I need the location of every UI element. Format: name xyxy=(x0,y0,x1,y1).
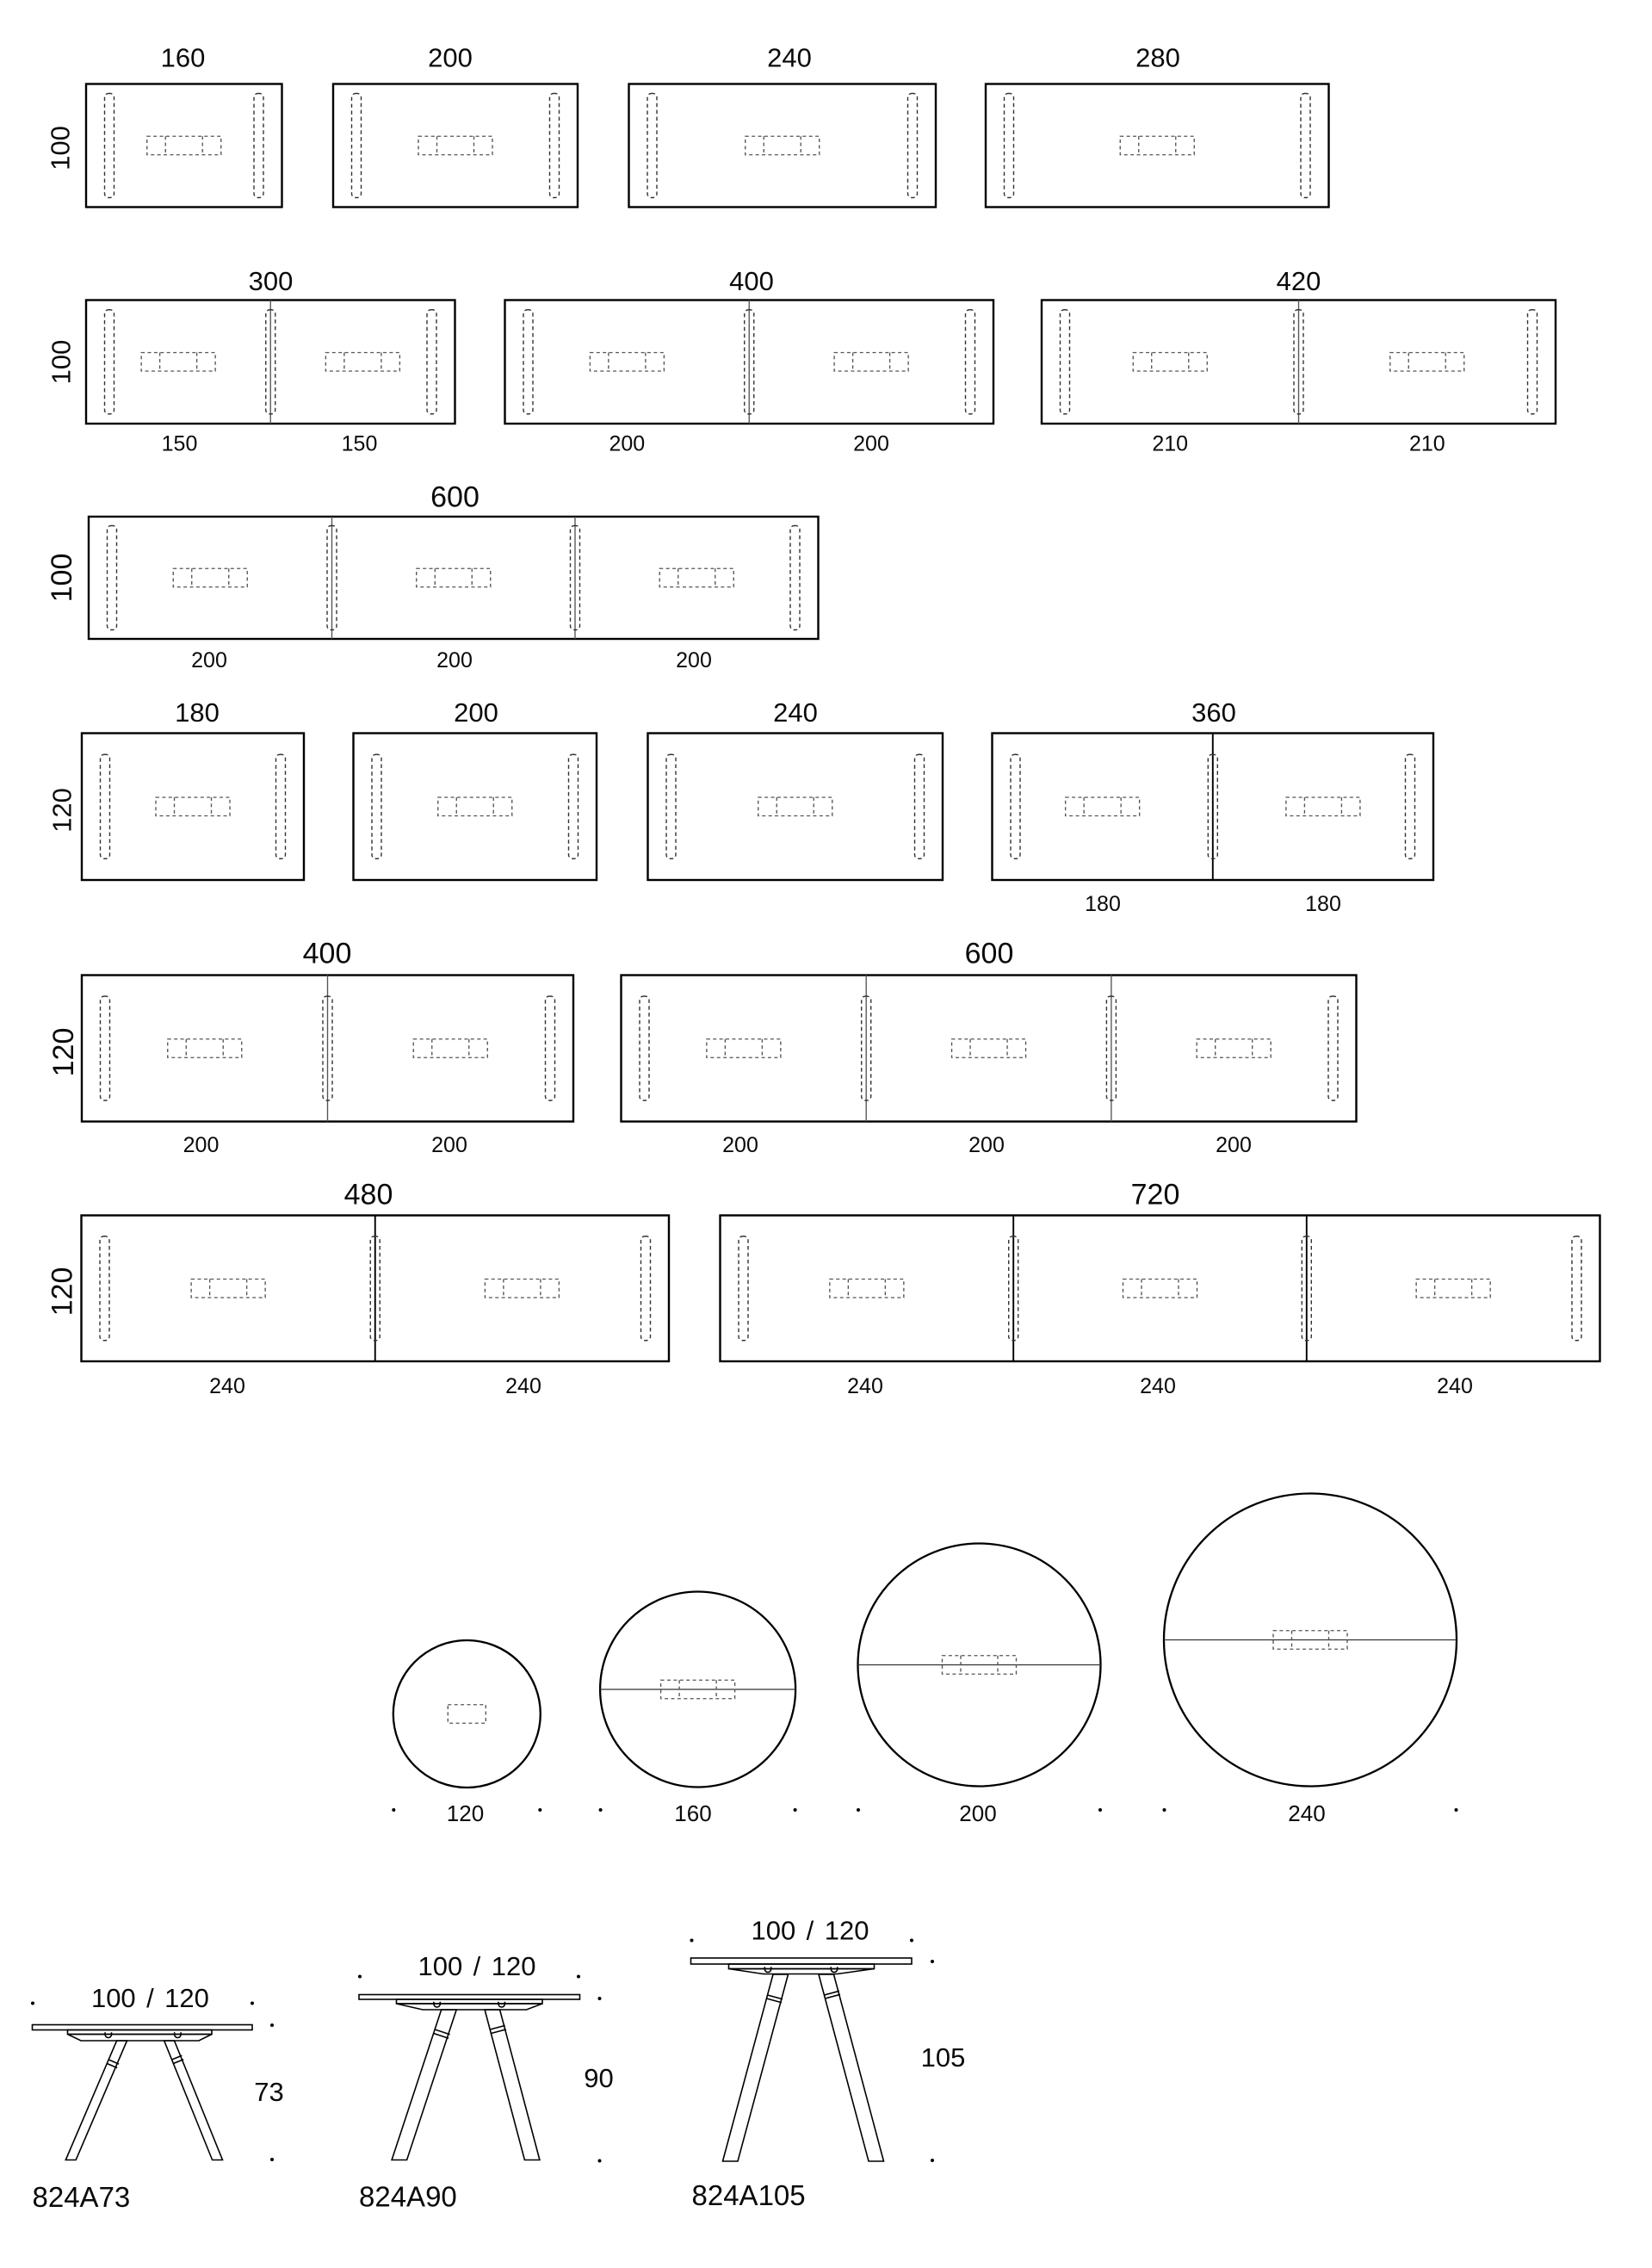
svg-text:160: 160 xyxy=(674,1800,711,1826)
svg-text:90: 90 xyxy=(584,2063,613,2093)
svg-text:100: 100 xyxy=(46,554,78,603)
svg-text:360: 360 xyxy=(1191,697,1236,728)
svg-text:200: 200 xyxy=(191,648,227,672)
svg-text:180: 180 xyxy=(1085,892,1121,916)
svg-text:420: 420 xyxy=(1277,266,1321,296)
svg-text:100 / 120: 100 / 120 xyxy=(91,1983,209,2013)
svg-text:400: 400 xyxy=(729,266,774,296)
svg-text:180: 180 xyxy=(1305,892,1341,916)
svg-text:240: 240 xyxy=(1140,1374,1176,1398)
svg-text:120: 120 xyxy=(447,1800,484,1826)
svg-text:240: 240 xyxy=(1437,1374,1473,1398)
svg-text:200: 200 xyxy=(959,1800,996,1826)
svg-text:200: 200 xyxy=(968,1133,1005,1157)
svg-text:200: 200 xyxy=(454,697,498,728)
svg-text:400: 400 xyxy=(303,938,352,970)
svg-text:180: 180 xyxy=(175,697,220,728)
svg-text:200: 200 xyxy=(1216,1133,1252,1157)
svg-text:120: 120 xyxy=(46,1267,79,1317)
svg-text:73: 73 xyxy=(254,2077,283,2107)
svg-text:200: 200 xyxy=(183,1133,220,1157)
svg-text:200: 200 xyxy=(676,648,712,672)
svg-text:480: 480 xyxy=(344,1179,393,1211)
svg-text:100 / 120: 100 / 120 xyxy=(752,1915,869,1945)
svg-text:200: 200 xyxy=(428,42,473,72)
svg-text:100: 100 xyxy=(46,126,76,170)
svg-text:824A105: 824A105 xyxy=(692,2179,806,2211)
svg-text:600: 600 xyxy=(965,938,1014,970)
svg-text:824A73: 824A73 xyxy=(33,2181,131,2213)
svg-text:150: 150 xyxy=(162,432,198,456)
svg-text:200: 200 xyxy=(853,432,889,456)
svg-text:600: 600 xyxy=(430,481,480,514)
svg-text:210: 210 xyxy=(1152,432,1188,456)
svg-text:200: 200 xyxy=(609,432,645,456)
svg-text:160: 160 xyxy=(161,42,206,72)
svg-text:100 / 120: 100 / 120 xyxy=(418,1951,536,1981)
svg-text:824A90: 824A90 xyxy=(359,2181,457,2213)
svg-text:280: 280 xyxy=(1135,42,1180,72)
svg-text:200: 200 xyxy=(722,1133,758,1157)
svg-text:120: 120 xyxy=(47,788,77,833)
svg-text:120: 120 xyxy=(47,1028,80,1077)
svg-text:200: 200 xyxy=(431,1133,467,1157)
svg-text:720: 720 xyxy=(1131,1179,1180,1211)
svg-text:240: 240 xyxy=(773,697,818,728)
svg-text:200: 200 xyxy=(436,648,473,672)
svg-text:100: 100 xyxy=(46,340,77,385)
svg-text:240: 240 xyxy=(209,1374,245,1398)
svg-text:240: 240 xyxy=(847,1374,883,1398)
svg-text:210: 210 xyxy=(1409,432,1445,456)
svg-text:105: 105 xyxy=(921,2042,966,2073)
svg-text:240: 240 xyxy=(505,1374,541,1398)
svg-text:150: 150 xyxy=(342,432,378,456)
svg-text:300: 300 xyxy=(249,266,294,296)
svg-text:240: 240 xyxy=(1288,1800,1325,1826)
svg-text:240: 240 xyxy=(767,42,812,72)
